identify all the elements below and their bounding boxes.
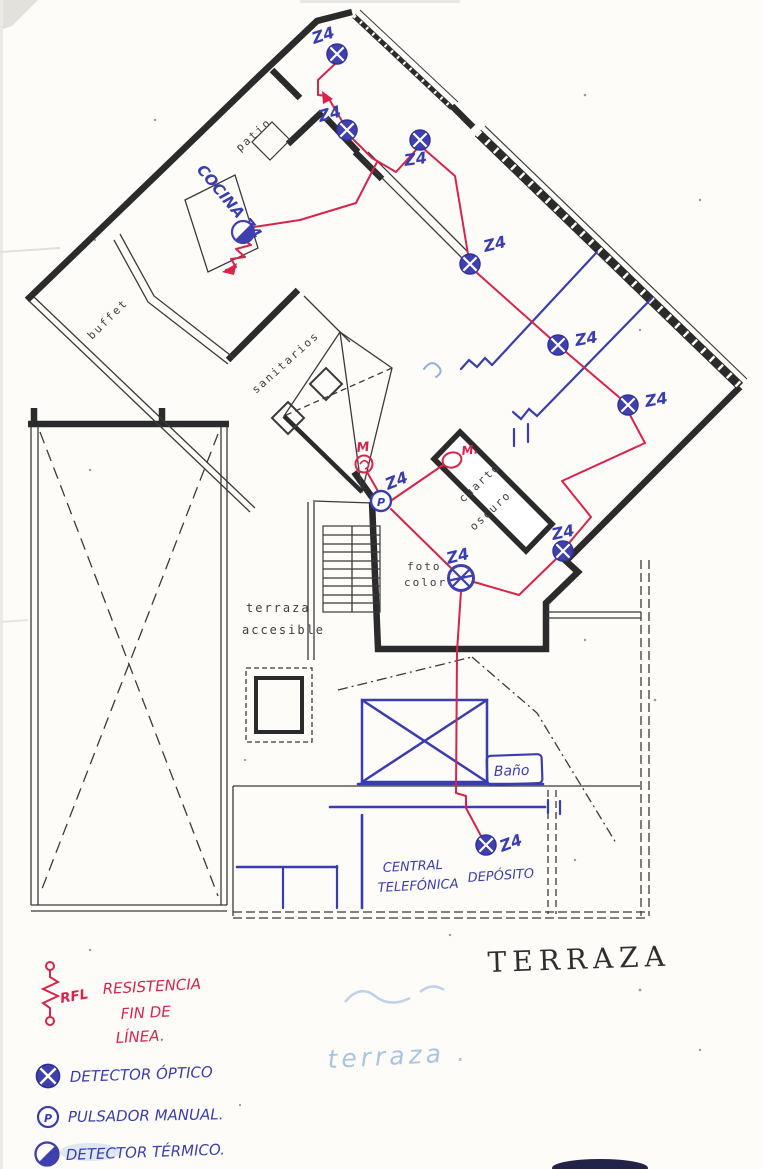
room-label-accesible: accesible (242, 623, 325, 637)
pulsador-letter: P (44, 1112, 52, 1125)
room-cuarto-oscuro-walls (434, 432, 552, 551)
terrace-rect-walls (31, 426, 227, 911)
zone-label: Z4 (642, 388, 669, 411)
rfl-line-2: FIN DE (120, 1002, 171, 1023)
thermal-detector-cocina (232, 221, 254, 243)
manual-label-1: M (356, 440, 370, 456)
optical-detector-z4-2: Z4 (315, 102, 357, 140)
rfl-line-3: LÍNEA. (115, 1025, 165, 1047)
manual-label-2: M. (461, 442, 479, 458)
scanned-floor-plan-page: patio buffet sanitarios cuarto oscuro fo… (0, 0, 762, 1169)
room-label-patio: patio (233, 116, 274, 155)
ink-smudge-bottom (552, 1159, 648, 1169)
room-label-central: CENTRAL (382, 858, 443, 876)
legend-label-pulsador: PULSADOR MANUAL. (68, 1105, 224, 1126)
rfl-abbr: RFL (59, 986, 90, 1007)
room-label-bano: Baño (494, 763, 530, 780)
wall-outline-nw (27, 12, 352, 300)
rfl-line-1: RESISTENCIA (102, 975, 201, 998)
faint-squiggle (424, 363, 441, 377)
optical-detector-z4-6: Z4 (618, 388, 669, 415)
wall-outline-se (372, 387, 740, 649)
faint-scribble (345, 986, 444, 1002)
legend-label-optical: DETECTOR ÓPTICO (69, 1062, 213, 1086)
zone-label: Z4 (443, 544, 471, 568)
manual-call-point-icon: P (38, 1107, 58, 1127)
zone-label: Z4 (496, 830, 525, 856)
legend-item-optical: DETECTOR ÓPTICO (37, 1062, 214, 1087)
legend-item-termico: DETECTOR TÉRMICO. (36, 1139, 226, 1165)
pencil-walls-thick (27, 12, 740, 649)
planter-square (246, 668, 312, 742)
zone-label: Z4 (402, 148, 428, 170)
optical-detector-z4-1: Z4 (308, 23, 347, 64)
room-label-buffet: buffet (85, 296, 131, 342)
optical-detector-z4-5: Z4 (548, 327, 599, 355)
optical-detector-icon (37, 1065, 60, 1088)
wall-sanitarios-nw (228, 290, 298, 360)
red-wiring (222, 62, 645, 836)
room-label-terraza: terraza (246, 601, 311, 615)
blue-x-box (362, 700, 487, 782)
sanitarios-cell-2 (310, 368, 342, 400)
zone-label: Z4 (480, 232, 508, 256)
legend-item-pulsador: P PULSADOR MANUAL. (38, 1105, 224, 1127)
room-label-deposito: DEPÓSITO (467, 865, 535, 886)
room-label-telefonica: TELEFÓNICA (377, 876, 459, 896)
terraza-title: TERRAZA (487, 940, 671, 979)
titles: TERRAZA terraza . (327, 940, 672, 1074)
thermal-detector-icon (36, 1143, 59, 1166)
wall-jamb (452, 106, 473, 127)
glazed-wall-ne (354, 10, 747, 386)
pencil-walls-thin (29, 122, 649, 918)
optical-detector-z4-foto: Z4 (443, 544, 473, 591)
zone-label: Z4 (315, 102, 343, 126)
floor-plan-scan: patio buffet sanitarios cuarto oscuro fo… (0, 0, 762, 1169)
pulsador-letter: P (377, 496, 385, 509)
room-label-foto: foto (407, 560, 442, 573)
optical-detector-z4-deposito: Z4 (476, 830, 525, 856)
legend: RFL RESISTENCIA FIN DE LÍNEA. DETECTOR Ó… (36, 962, 226, 1166)
terraza-faint-note: terraza . (327, 1038, 470, 1074)
room-label-color: color (404, 576, 447, 589)
rfl-resistor-icon (43, 962, 58, 1025)
zone-label: Z4 (572, 327, 599, 350)
